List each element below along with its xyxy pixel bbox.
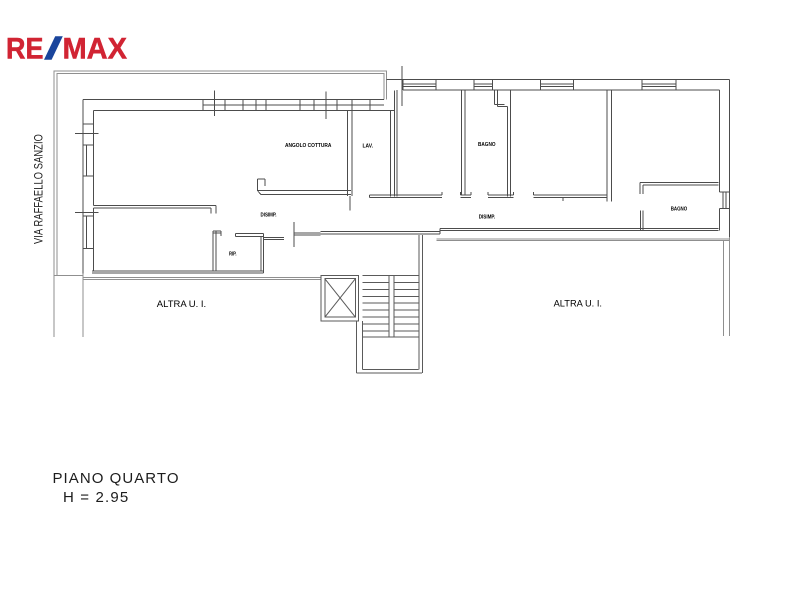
svg-text:RIP.: RIP. [229, 252, 237, 258]
svg-text:ALTRA U. I.: ALTRA U. I. [554, 299, 602, 310]
svg-text:DISIMP.: DISIMP. [261, 212, 277, 218]
svg-text:BAGNO: BAGNO [478, 142, 496, 148]
svg-text:LAV.: LAV. [363, 143, 374, 149]
svg-text:DISIMP.: DISIMP. [479, 215, 496, 221]
svg-text:ANGOLO COTTURA: ANGOLO COTTURA [285, 143, 332, 149]
svg-text:BAGNO: BAGNO [671, 207, 688, 213]
svg-text:ALTRA U. I.: ALTRA U. I. [157, 299, 206, 310]
